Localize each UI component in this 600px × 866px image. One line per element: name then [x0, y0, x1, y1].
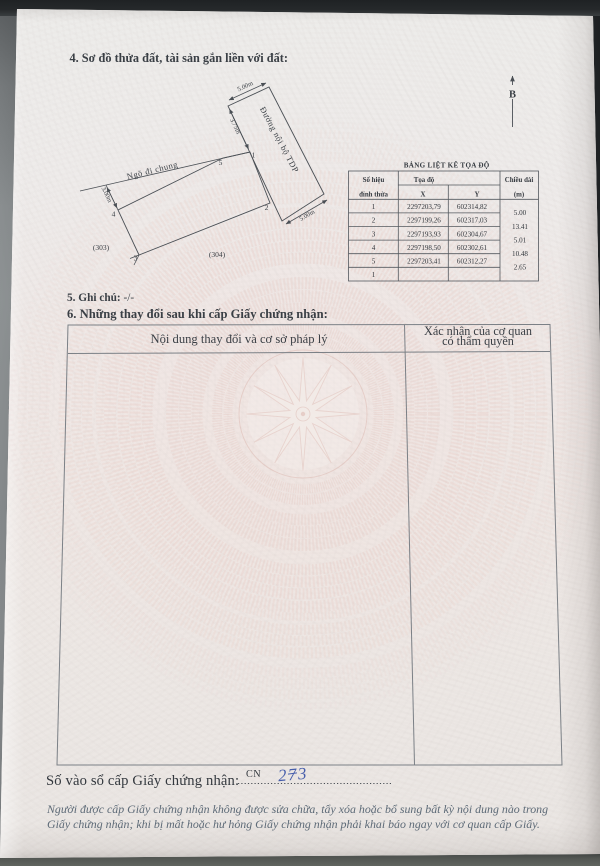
svg-text:4: 4 [112, 210, 116, 219]
svg-text:2: 2 [372, 217, 376, 225]
svg-text:4: 4 [372, 244, 376, 252]
svg-text:13.41: 13.41 [512, 223, 528, 231]
svg-text:1: 1 [372, 203, 376, 211]
svg-text:10.48: 10.48 [512, 250, 528, 258]
svg-text:5.00m: 5.00m [236, 80, 254, 93]
svg-text:(m): (m) [514, 192, 524, 199]
svg-text:X: X [421, 192, 426, 199]
svg-text:Đường nội bộ TDP: Đường nội bộ TDP [258, 105, 301, 174]
svg-text:(304): (304) [209, 250, 226, 259]
svg-text:3: 3 [134, 254, 138, 263]
svg-text:2: 2 [265, 203, 269, 212]
svg-text:2297199,26: 2297199,26 [407, 217, 441, 225]
svg-text:2297203,79: 2297203,79 [407, 203, 441, 211]
svg-text:3.75m: 3.75m [228, 117, 241, 135]
svg-text:Chiều dài: Chiều dài [505, 177, 534, 184]
svg-text:602317,03: 602317,03 [457, 217, 488, 225]
svg-text:Tọa độ: Tọa độ [414, 177, 435, 184]
svg-text:5: 5 [219, 158, 223, 167]
svg-text:5.00: 5.00 [514, 209, 527, 217]
svg-text:đỉnh thửa: đỉnh thửa [359, 192, 388, 199]
svg-text:2.65: 2.65 [514, 264, 527, 272]
svg-text:602312,27: 602312,27 [457, 258, 488, 266]
svg-text:1: 1 [252, 151, 256, 160]
svg-text:(303): (303) [93, 243, 110, 252]
svg-text:3: 3 [372, 230, 376, 238]
svg-text:602314,82: 602314,82 [457, 203, 488, 211]
svg-text:2297203,41: 2297203,41 [407, 258, 441, 266]
svg-text:1: 1 [372, 271, 376, 279]
svg-text:B: B [509, 90, 516, 101]
svg-text:602302,61: 602302,61 [457, 244, 488, 252]
svg-text:Số hiệu: Số hiệu [363, 177, 385, 184]
svg-text:5.00m: 5.00m [298, 209, 316, 223]
svg-text:Y: Y [475, 192, 480, 199]
svg-text:2297193,93: 2297193,93 [407, 230, 441, 238]
svg-text:BẢNG LIỆT KÊ TỌA ĐỘ: BẢNG LIỆT KÊ TỌA ĐỘ [404, 162, 490, 170]
svg-text:602304,67: 602304,67 [457, 230, 488, 238]
svg-text:5.01: 5.01 [514, 236, 527, 244]
svg-text:3.00m: 3.00m [100, 186, 113, 204]
svg-text:2297198,50: 2297198,50 [407, 244, 441, 252]
svg-text:5: 5 [372, 258, 376, 266]
svg-text:Ngõ đi chung: Ngõ đi chung [126, 159, 179, 181]
